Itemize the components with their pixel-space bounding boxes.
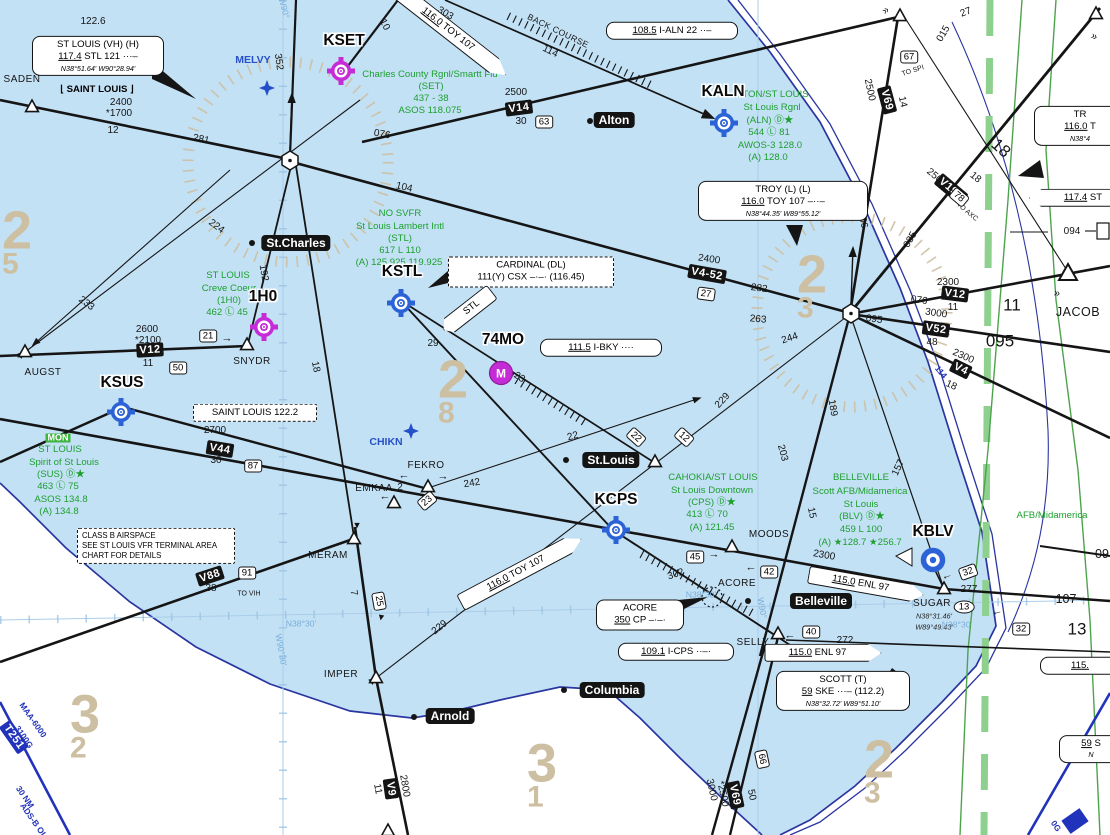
1h0-elev: 462 Ⓛ 45 — [206, 308, 248, 318]
box-troy-line: TROY (L) (L) — [703, 184, 863, 196]
box-59s-edge: 59 SN — [1059, 735, 1110, 763]
dist-18-w: 18 — [309, 361, 321, 374]
box-scott: SCOTT (T)59 SKE ···– (112.2)N38°32.72' W… — [776, 671, 910, 711]
apt-kaln: KALN — [701, 83, 744, 101]
box-scott-line: N38°32.72' W89°51.10' — [781, 699, 905, 708]
box-troy-edge-line: N38°4 — [1039, 134, 1110, 143]
crs-242: 242 — [463, 478, 481, 490]
apt-1h0: 1H0 — [249, 288, 277, 306]
box-acore-line: 350 CP –·–· — [601, 615, 679, 627]
crs-114-blue: 114 — [933, 364, 948, 380]
crs-095-big: 095 — [986, 333, 1014, 350]
box-class-b-line: CLASS B AIRSPACE — [82, 531, 230, 541]
dist-30-v44: 30 — [210, 456, 221, 466]
kaln-elev: 544 Ⓛ 81 — [748, 128, 790, 138]
grat-n3830-e: N38°30' — [942, 621, 972, 630]
fix-augst: AUGST — [25, 368, 62, 378]
edge-afb: AFB/Midamerica — [1017, 511, 1088, 521]
kcps-atis: (A) 121.45 — [690, 523, 735, 533]
box-class-b: CLASS B AIRSPACESEE ST LOUIS VFR TERMINA… — [77, 528, 235, 564]
apt-kset: KSET — [323, 32, 364, 50]
dist-13-big: 13 — [1068, 621, 1087, 638]
mi-27: 27 — [696, 286, 715, 301]
box-i-cps-line: 109.1 I-CPS ··–· — [623, 646, 729, 658]
box-115-edge-line: 115. — [1045, 660, 1110, 672]
kcps-name1: CAHOKIA/ST LOUIS — [668, 473, 757, 483]
box-scott-line: 59 SKE ···– (112.2) — [781, 686, 905, 698]
arrow-icon-5: ← — [990, 605, 1003, 618]
kstl-id: (STL) — [388, 234, 412, 244]
kstl-nosvfr: NO SVFR — [379, 209, 422, 219]
crs-233: 233 — [76, 295, 95, 313]
crs-203: 203 — [775, 444, 789, 463]
crs-277: 277 — [961, 585, 978, 595]
kblv-elev: 459 L 100 — [840, 525, 882, 535]
oroca-base: 2 — [438, 358, 468, 401]
arrow-icon-2: » — [1089, 31, 1099, 44]
box-st-louis-vor-line: ST LOUIS (VH) (H) — [37, 39, 159, 51]
box-st-louis-vor: ST LOUIS (VH) (H)117.4 STL 121 ···–N38°5… — [32, 36, 164, 76]
box-troy-edge: TR116.0 TN38°4 — [1034, 106, 1110, 146]
grat-w90-top: W90° — [277, 0, 291, 19]
oroca-32: 32 — [70, 693, 100, 760]
mi-63: 63 — [535, 116, 553, 129]
oroca-base: 2 — [864, 738, 894, 781]
kblv-name3: St Louis — [844, 500, 879, 510]
mi-66: 66 — [754, 749, 770, 769]
awy-v69-n: V69 — [877, 85, 898, 115]
box-troy-line: 116.0 TOY 107 –··– — [703, 196, 863, 208]
ksus-id: (SUS) Ⓓ★ — [37, 470, 85, 480]
box-stl-flag-edge: 117.4 ST — [1029, 189, 1110, 207]
crs-094: 094 — [1064, 227, 1081, 237]
city-alton: Alton — [594, 112, 635, 128]
lbl-back-course: BACK COURSE — [526, 12, 590, 49]
city-belleville: Belleville — [790, 593, 852, 609]
awy-v12-w: V12 — [136, 342, 164, 357]
fix-snydr: SNYDR — [233, 357, 271, 367]
alt-2600-v12: 2600 — [136, 325, 158, 335]
fix-meram: MERAM — [308, 551, 348, 561]
ksus-name2: Spirit of St Louis — [29, 458, 99, 468]
arrow-icon-12: → — [438, 472, 449, 483]
awy-v52: V52 — [922, 320, 951, 338]
arrow-icon-3: → — [222, 334, 233, 345]
crs-09-edge: 09 — [1095, 548, 1109, 561]
box-115-edge: 115. — [1040, 657, 1110, 675]
oroca-base: 3 — [527, 742, 557, 785]
kcps-id: (CPS) Ⓓ★ — [688, 498, 736, 508]
oroca-base: 2 — [2, 209, 32, 252]
mi-45: 45 — [686, 551, 704, 564]
box-troy-line: N38°44.35' W89°55.12' — [703, 209, 863, 218]
box-stl-pennant: STL — [438, 285, 498, 338]
box-i-aln: 108.5 I-ALN 22 ··– — [606, 22, 738, 40]
box-saint-louis: SAINT LOUIS — [56, 82, 138, 98]
fix-sugar: SUGAR — [913, 599, 951, 609]
apt-kcps: KCPS — [594, 491, 637, 509]
crs-229-s: 229 — [430, 619, 449, 637]
city-st-charles: St.Charles — [261, 235, 330, 251]
grat-w90-c: W90° — [756, 597, 768, 619]
crs-076-w: 076 — [373, 129, 391, 142]
dist-27-ne: 27 — [959, 6, 973, 19]
grat-n3830-c: N38°30' — [686, 591, 716, 600]
fix-acore: ACORE — [718, 579, 756, 589]
box-stl-pennant-line: STL — [452, 290, 493, 326]
box-saint-louis-122: SAINT LOUIS 122.2 — [193, 404, 317, 422]
enroute-chart-canvas[interactable]: M 122.6SADEN2400*170012281352W90°MELVY10… — [0, 0, 1110, 835]
dist-11-v12w: 11 — [143, 359, 153, 369]
sugar-lat: N38°31.46' — [916, 612, 952, 619]
dist-22: 22 — [566, 431, 579, 444]
box-troy: TROY (L) (L)116.0 TOY 107 –··–N38°44.35'… — [698, 181, 868, 221]
crs-263: 263 — [749, 314, 766, 325]
mi-22: 22 — [625, 426, 647, 447]
alt-2300-blv: 2300 — [812, 549, 836, 563]
mi-12: 12 — [673, 426, 695, 447]
dist-7: 7 — [348, 589, 359, 596]
oroca-base: 2 — [797, 253, 827, 296]
kblv-name1: BELLEVILLE — [833, 473, 889, 483]
box-i-bky-line: 111.5 I-BKY ···· — [545, 342, 657, 354]
city-st-louis: St.Louis — [582, 452, 639, 468]
alt-1700-nw: *1700 — [106, 109, 132, 119]
box-saint-louis-122-line: SAINT LOUIS 122.2 — [198, 407, 312, 419]
fix-fekro: FEKRO — [408, 461, 445, 471]
alt-2400-nw: 2400 — [110, 98, 132, 108]
box-i-bky: 111.5 I-BKY ···· — [540, 339, 662, 357]
city-columbia: Columbia — [580, 682, 645, 698]
fix-imper: IMPER — [324, 670, 358, 680]
box-i-cps: 109.1 I-CPS ··–· — [618, 643, 734, 661]
t251-adsb: ADS-B OU — [19, 802, 50, 835]
arrow-icon-6: ← — [940, 569, 954, 583]
grat-n3830-w: N38°30' — [286, 620, 316, 629]
crs-302: 302 — [667, 568, 686, 583]
kaln-awos: AWOS-3 128.0 — [738, 141, 802, 151]
to-spi: TO SPI — [901, 64, 925, 78]
arrow-icon-4: ← — [785, 631, 796, 642]
dist-10-kset: 10 — [377, 18, 391, 33]
box-st-louis-vor-line: N38°51.64' W90°28.94' — [37, 64, 159, 73]
arrow-icon-11: ← — [399, 471, 410, 482]
box-acore: ACORE350 CP –·–· — [596, 600, 684, 631]
dist-18-big: 18 — [988, 135, 1013, 160]
mi-13-oval: 13 — [954, 601, 975, 614]
dist-38-v88: 38 — [205, 584, 216, 594]
box-scott-line: SCOTT (T) — [781, 674, 905, 686]
crs-229-n: 229 — [714, 391, 733, 410]
kblv-name2: Scott AFB/Midamerica — [813, 487, 908, 497]
box-saint-louis-line: SAINT LOUIS — [60, 84, 134, 96]
oroca-23-b: 23 — [864, 738, 894, 805]
kset-asos: ASOS 118.075 — [398, 106, 461, 116]
crs-352: 352 — [272, 53, 284, 71]
fix-chikn: CHIKN — [369, 437, 402, 448]
arrow-icon-9: ▾ — [377, 612, 384, 624]
crs-281: 281 — [192, 133, 210, 146]
mi-32-b: 32 — [1012, 623, 1030, 636]
dist-12-nw: 12 — [107, 126, 118, 136]
dist-11-v9: 11 — [371, 783, 383, 795]
fix-moods: MOODS — [749, 530, 789, 540]
ksus-elev: 463 Ⓛ 75 — [37, 482, 79, 492]
crs-192: 192 — [257, 264, 270, 282]
box-class-b-line: CHART FOR DETAILS — [82, 551, 230, 561]
fix-saden: SADEN — [4, 75, 41, 85]
kaln-name2: St Louis Rgnl — [743, 103, 800, 113]
mi-91: 91 — [238, 567, 256, 580]
dist-15: 15 — [805, 507, 817, 520]
kblv-id: (BLV) Ⓓ★ — [839, 512, 885, 522]
apt-kstl: KSTL — [382, 263, 422, 281]
mi-32-a: 32 — [958, 563, 979, 581]
ksus-asos: ASOS 134.8 — [34, 495, 87, 505]
apt-ksus: KSUS — [100, 374, 143, 392]
box-troy-edge-line: 116.0 T — [1039, 121, 1110, 133]
ksus-atis: (A) 134.8 — [39, 507, 78, 517]
box-cardinal: CARDINAL (DL)111(Y) CSX –·–· (116.45) — [448, 257, 614, 288]
mi-67: 67 — [900, 51, 918, 64]
apt-kblv: KBLV — [912, 523, 953, 541]
dist-30-v14: 30 — [515, 117, 526, 127]
awy-v9: V9 — [383, 778, 400, 800]
box-stl-flag-edge-line: 117.4 ST — [1044, 192, 1110, 204]
alt-2800-v9: 2800 — [397, 774, 411, 798]
1h0-name1: ST LOUIS — [206, 271, 250, 281]
box-toy-flag-s-line: 116.0 TOY 107 — [462, 541, 570, 606]
crs-244: 244 — [781, 332, 800, 347]
kaln-atis: (A) 128.0 — [748, 153, 787, 163]
crs-224: 224 — [206, 218, 225, 236]
kset-id: (SET) — [418, 82, 443, 92]
oroca-28: 28 — [438, 358, 468, 425]
box-i-aln-line: 108.5 I-ALN 22 ··– — [611, 25, 733, 37]
kstl-elev: 617 L 110 — [379, 246, 421, 256]
alt-2500-v69n: 2500 — [862, 78, 876, 102]
city-arnold: Arnold — [426, 708, 475, 724]
crs-035: 035 — [902, 230, 919, 249]
oroca-31: 31 — [527, 742, 557, 809]
box-cardinal-line: CARDINAL (DL) — [453, 260, 609, 272]
box-class-b-line: SEE ST LOUIS VFR TERMINAL AREA — [82, 541, 230, 551]
dist-11-big: 11 — [1003, 297, 1021, 314]
box-59s-edge-line: 59 S — [1064, 738, 1110, 750]
alt-3000-v52: 3000 — [924, 308, 947, 321]
fix-melvy: MELVY — [235, 55, 270, 66]
kcps-elev: 413 Ⓛ 70 — [686, 510, 728, 520]
oroca-base: 3 — [70, 693, 100, 736]
kstl-name: St Louis Lambert Intl — [356, 222, 444, 232]
awy-v4-52: V4-52 — [687, 264, 727, 284]
grat-w9030: W90°30' — [274, 633, 288, 666]
kset-name: Charles County Rgnl/Smartt Fld — [362, 70, 497, 80]
freq-122-6: 122.6 — [80, 17, 105, 27]
box-st-louis-vor-line: 117.4 STL 121 ···– — [37, 51, 159, 63]
dist-2-emkaa: 2 — [397, 483, 403, 493]
arrow-icon-10: ▾ — [354, 521, 360, 532]
dist-18-v191: 18 — [968, 171, 983, 186]
dist-11-v12e: 11 — [948, 303, 958, 313]
mi-23: 23 — [416, 490, 438, 511]
mi-50: 50 — [169, 362, 187, 375]
crs-157: 157 — [891, 458, 907, 477]
fix-jacob: JACOB — [1056, 306, 1100, 319]
dist-18-v4: 18 — [944, 379, 958, 393]
mi-40: 40 — [802, 626, 820, 639]
dist-29: 29 — [427, 339, 438, 349]
alt-2500-v14: 2500 — [505, 88, 527, 98]
crs-095: 095 — [865, 314, 883, 326]
alt-2700-v44: 2700 — [204, 426, 226, 436]
chart-label-layer: 122.6SADEN2400*170012281352W90°MELVY1030… — [0, 0, 1110, 835]
box-acore-line: ACORE — [601, 603, 679, 615]
box-enl-2-line: 115.0 ENL 97 — [770, 647, 866, 659]
ksus-mon: MON — [46, 434, 71, 443]
crs-104: 104 — [395, 181, 414, 194]
troute-se: 0G — [1049, 819, 1062, 833]
ksus-name1: ST LOUIS — [38, 445, 82, 455]
crs-114-bc: 114 — [541, 44, 560, 60]
dist-48-v52: 48 — [926, 338, 937, 348]
to-vih: TO VIH — [237, 591, 260, 598]
1h0-id: (1H0) — [217, 296, 241, 306]
box-enl-2: 115.0 ENL 97 — [765, 644, 882, 662]
dist-50-v69s: 50 — [745, 789, 757, 802]
arrow-icon-7: → — [709, 550, 720, 561]
mi-87: 87 — [244, 460, 262, 473]
kblv-atis: (A) ★128.7 ★256.7 — [818, 538, 901, 548]
kcps-name2: St Louis Downtown — [671, 486, 753, 496]
arrow-icon-8: ← — [746, 563, 757, 574]
mi-25: 25 — [371, 591, 387, 611]
crs-076-e: 076 — [910, 295, 928, 307]
kaln-id: (ALN) Ⓓ★ — [747, 116, 794, 126]
crs-189: 189 — [826, 399, 839, 417]
dist-14-v69: 14 — [896, 96, 908, 109]
awy-v14: V14 — [505, 99, 534, 116]
oroca-23-a: 23 — [797, 253, 827, 320]
dist-23-bky: 23 — [512, 371, 527, 385]
awy-v12-e: V12 — [941, 285, 970, 302]
mi-42: 42 — [760, 566, 778, 579]
arrow-icon-13: ← — [380, 492, 391, 503]
box-59s-edge-line: N — [1064, 751, 1110, 760]
apt-74mo: 74MO — [482, 331, 524, 349]
kset-elev: 437 - 38 — [413, 94, 448, 104]
box-toy-flag-s: 116.0 TOY 107 — [456, 531, 586, 612]
arrow-icon-1: » — [1053, 288, 1061, 300]
box-cardinal-line: 111(Y) CSX –·–· (116.45) — [453, 272, 609, 284]
box-troy-edge-line: TR — [1039, 109, 1110, 121]
arrow-icon-0: » — [880, 5, 891, 18]
crs-282: 282 — [750, 283, 768, 295]
alt-2400-v452: 2400 — [697, 254, 720, 267]
crs-015: 015 — [935, 24, 952, 43]
mi-21: 21 — [199, 330, 217, 343]
oroca-25: 25 — [2, 209, 32, 276]
crs-107: 107 — [1056, 593, 1077, 606]
